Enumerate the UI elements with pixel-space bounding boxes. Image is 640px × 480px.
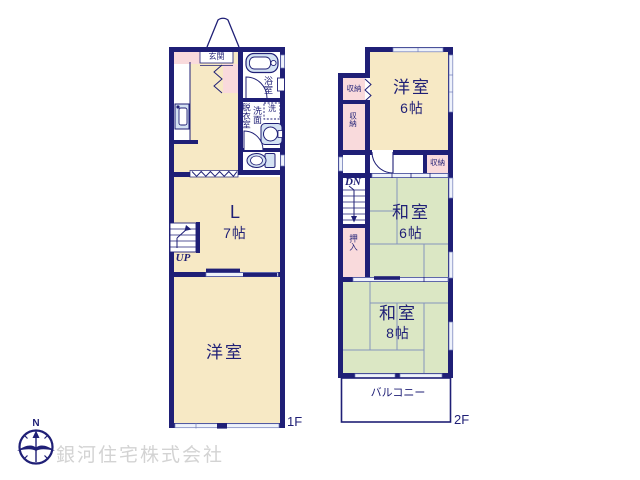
window-bath	[281, 55, 285, 68]
compass-icon	[17, 431, 55, 464]
japanese-room-8-label: 和室	[372, 305, 424, 323]
toilet-icon	[247, 154, 275, 168]
bathtub-icon	[246, 54, 278, 73]
balcony-label: バルコニー	[356, 388, 440, 400]
storage-left-label: 収納	[349, 112, 357, 142]
bath-heater-icon	[278, 78, 285, 91]
floor1-tag: 1F	[287, 415, 302, 429]
living-size-label: 7帖	[213, 226, 257, 241]
floorplan-canvas: 玄関 浴室 洗 洗面 脱衣室 L 7帖 UP 洋室 1F 収納 収納 洋室 6帖…	[0, 0, 640, 480]
entrance-label: 玄関	[200, 53, 233, 61]
window-toilet	[281, 155, 285, 166]
hall-closet	[223, 64, 238, 93]
stairs-down-label: DN	[345, 177, 361, 189]
kitchen-sink-icon	[175, 104, 189, 129]
accordion-door	[190, 171, 238, 178]
balcony-area	[342, 378, 451, 422]
living-label: L	[215, 203, 255, 222]
japanese-room-6-size: 6帖	[391, 226, 431, 241]
stairs-up-label: UP	[170, 253, 196, 265]
window-1f-south	[175, 423, 279, 429]
sliding-door-hall	[372, 173, 448, 178]
floor2-tag: 2F	[454, 413, 469, 427]
dressing-room-label: 脱衣室	[242, 103, 251, 137]
storage-mid-label: 収納	[427, 159, 448, 167]
bath-label: 浴室	[263, 76, 272, 102]
washer-label: 洗	[264, 105, 280, 113]
stairs-up	[170, 223, 196, 252]
japanese-room-8-size: 8帖	[378, 326, 418, 341]
closet-label: 押入	[349, 234, 358, 268]
floorplan-graphics	[0, 0, 640, 480]
company-watermark: 銀河住宅株式会社	[56, 446, 224, 466]
entrance-door-arc	[207, 18, 239, 47]
japanese-room-6-label: 和室	[385, 204, 437, 222]
storage-top-label: 収納	[343, 85, 365, 93]
shoe-cabinet	[174, 52, 200, 64]
washbasin-icon	[261, 124, 283, 145]
western-room-1f-label: 洋室	[202, 344, 248, 362]
western-room-2f-label: 洋室	[386, 79, 438, 97]
compass-north-label: N	[29, 419, 43, 430]
western-room-2f-size: 6帖	[392, 101, 432, 116]
vanity-label: 洗面	[252, 106, 261, 132]
